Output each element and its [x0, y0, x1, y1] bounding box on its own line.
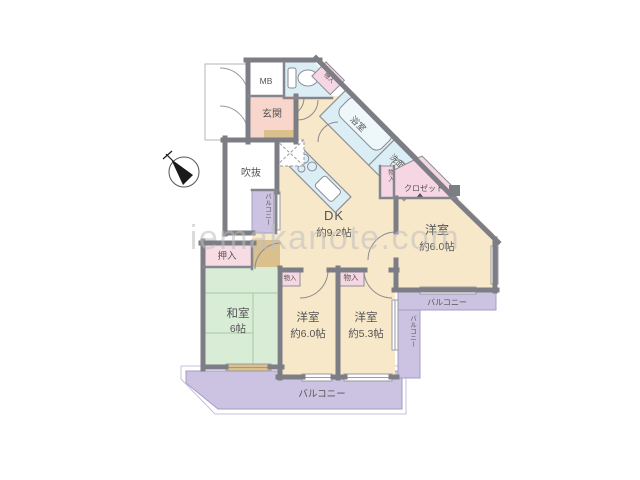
balcony-east-upper-label: バルコニー — [427, 298, 467, 307]
bedroom-s2-size: 約5.3帖 — [348, 327, 384, 340]
compass-icon — [163, 151, 199, 187]
floorplan-canvas: バルコニー バルコニー バルコニー 廊下 DK 約9.2帖 洋室 約6.0帖 洋… — [0, 0, 640, 480]
storage-s1-label: 物入 — [284, 273, 298, 282]
meter-box-label: MB — [260, 76, 273, 86]
void-label: 吹抜 — [241, 166, 261, 179]
watermark-text: iemakanote.com — [190, 219, 460, 257]
balcony-east-side: バルコニー — [398, 310, 420, 378]
floorplan-svg: バルコニー バルコニー バルコニー 廊下 DK 約9.2帖 洋室 約6.0帖 洋… — [0, 0, 640, 480]
wall-block — [449, 185, 460, 196]
storage-s2-label: 物入 — [344, 272, 359, 282]
room-meter-box: MB — [248, 62, 284, 96]
entrance-label: 玄関 — [262, 107, 282, 120]
japanese-room-size: 6帖 — [230, 322, 247, 335]
room-japanese: 和室 6帖 — [203, 267, 277, 367]
japanese-room-label: 和室 — [227, 306, 250, 320]
bedroom-s1-size: 約6.0帖 — [290, 327, 326, 340]
storage-ne: 物入 — [380, 166, 395, 198]
entrance-porch — [205, 64, 248, 140]
toilet-tank-icon — [288, 68, 296, 88]
bedroom-s2-label: 洋室 — [355, 310, 378, 324]
refrigerator-hatch — [276, 140, 304, 166]
balcony-south-label: バルコニー — [298, 389, 345, 400]
bedroom-s1-label: 洋室 — [297, 310, 320, 324]
